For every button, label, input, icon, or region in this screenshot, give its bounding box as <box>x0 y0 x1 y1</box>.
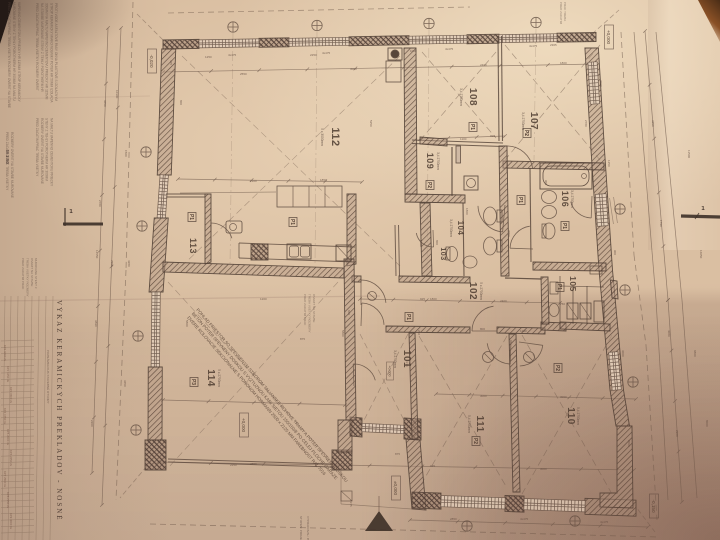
svg-text:14550: 14550 <box>95 250 99 259</box>
svg-text:900: 900 <box>544 180 548 185</box>
svg-text:PRED ZACATIM: PRED ZACATIM <box>559 2 563 25</box>
svg-text:KP4 1750 1x: KP4 1750 1x <box>3 408 7 425</box>
svg-text:2780: 2780 <box>98 200 102 207</box>
svg-text:3000: 3000 <box>560 395 567 399</box>
svg-text:1800: 1800 <box>430 297 437 301</box>
svg-text:2050: 2050 <box>507 230 511 237</box>
svg-text:4x475: 4x475 <box>520 517 529 521</box>
svg-text:11500: 11500 <box>687 150 691 158</box>
svg-text:105: 105 <box>568 276 578 292</box>
svg-text:5 x 3000mm: 5 x 3000mm <box>320 128 324 146</box>
svg-text:250: 250 <box>417 330 421 335</box>
svg-text:TREBA VSETKY ROZMERY: TREBA VSETKY ROZMERY <box>25 258 29 296</box>
svg-text:106: 106 <box>560 191 570 208</box>
svg-text:900: 900 <box>613 250 617 255</box>
svg-text:2550: 2550 <box>240 72 247 76</box>
svg-text:1100: 1100 <box>460 137 467 141</box>
svg-text:7550: 7550 <box>110 260 114 267</box>
svg-text:2780: 2780 <box>584 120 588 127</box>
svg-text:4x475: 4x475 <box>445 47 454 51</box>
svg-text:4x475: 4x475 <box>529 44 538 48</box>
svg-text:875: 875 <box>300 337 305 341</box>
svg-text:6800: 6800 <box>693 350 697 357</box>
svg-text:1000: 1000 <box>410 49 417 53</box>
svg-text:3,4 2700mm: 3,4 2700mm <box>521 112 525 130</box>
svg-text:P2: P2 <box>472 438 478 444</box>
svg-text:KP7 2500 1x: KP7 2500 1x <box>3 471 7 488</box>
svg-text:3000: 3000 <box>540 467 547 471</box>
svg-text:P1: P1 <box>188 214 194 220</box>
svg-text:P2: P2 <box>523 130 529 136</box>
svg-text:925: 925 <box>420 297 425 301</box>
svg-text:PRAC TREBA: PRAC TREBA <box>563 2 567 21</box>
svg-text:KP5 2000 3x: KP5 2000 3x <box>6 429 10 446</box>
svg-text:POHLAD PRIESTOR SO SPEVNENYM S: POHLAD PRIESTOR SO SPEVNENYM STROPOM TAL… <box>195 307 349 483</box>
svg-text:4x475: 4x475 <box>600 520 609 524</box>
svg-text:2200: 2200 <box>90 420 94 427</box>
svg-text:5800: 5800 <box>341 330 345 337</box>
svg-text:2850: 2850 <box>250 462 257 466</box>
svg-text:1: 1 <box>69 209 73 215</box>
svg-text:1375: 1375 <box>349 500 353 507</box>
svg-text:4280: 4280 <box>127 260 131 267</box>
svg-text:113: 113 <box>188 238 198 254</box>
svg-text:M 1:50: M 1:50 <box>5 150 10 165</box>
svg-text:114: 114 <box>205 369 216 387</box>
svg-text:112: 112 <box>329 127 341 146</box>
svg-text:1200: 1200 <box>520 329 527 333</box>
svg-text:3,4 2700mm: 3,4 2700mm <box>449 219 453 237</box>
svg-text:5800: 5800 <box>185 320 189 327</box>
svg-text:3650: 3650 <box>123 380 127 387</box>
svg-text:3250: 3250 <box>651 120 655 127</box>
svg-text:300MM NA MALTU VAPENNO CEMENTO: 300MM NA MALTU VAPENNO CEMENTOVU PRIECKY… <box>45 3 49 100</box>
svg-text:111: 111 <box>474 415 485 432</box>
svg-text:103: 103 <box>439 247 446 260</box>
svg-text:5,4 2700mm: 5,4 2700mm <box>467 415 471 433</box>
svg-text:KP6 2250 2x: KP6 2250 2x <box>9 450 13 467</box>
svg-text:800: 800 <box>435 240 439 245</box>
svg-text:1500: 1500 <box>124 150 128 157</box>
svg-text:-0,020: -0,020 <box>149 54 154 67</box>
svg-text:5250: 5250 <box>369 120 373 127</box>
svg-text:2400: 2400 <box>480 63 487 67</box>
svg-text:STROP KERAMICKY MIAKO NOSNIKY: STROP KERAMICKY MIAKO NOSNIKY POTER HR 5… <box>49 3 53 103</box>
svg-text:PRED ZACATIM PRAC TREBA VSETKY: PRED ZACATIM PRAC TREBA VSETKY <box>35 118 39 177</box>
svg-text:P1: P1 <box>289 219 295 225</box>
svg-text:425: 425 <box>169 60 173 65</box>
svg-text:P1: P1 <box>556 284 562 290</box>
svg-text:P2: P2 <box>554 365 560 371</box>
svg-text:2400: 2400 <box>500 299 507 303</box>
svg-text:5 x 2700mm: 5 x 2700mm <box>479 282 483 300</box>
svg-text:ROZMERY OVERIT NA STAVBE MUROV: ROZMERY OVERIT NA STAVBE MUROVANE <box>10 132 14 198</box>
svg-text:P1: P1 <box>517 197 523 203</box>
svg-text:2850: 2850 <box>450 517 457 521</box>
svg-text:PROTI VODE ASFALTOVE PASY OKNA: PROTI VODE ASFALTOVE PASY OKNA PLASTOVE … <box>54 3 58 101</box>
svg-text:1500: 1500 <box>419 240 423 247</box>
svg-text:1200: 1200 <box>260 297 267 301</box>
svg-text:P2: P2 <box>426 182 432 188</box>
svg-text:PRED ZACATIM PRAC: PRED ZACATIM PRAC <box>303 294 307 326</box>
svg-text:1850: 1850 <box>320 178 327 182</box>
svg-text:VYPRACOVAL: ING. ARCH: VYPRACOVAL: ING. ARCH <box>306 516 310 540</box>
svg-text:3000: 3000 <box>621 350 625 357</box>
svg-text:P3: P3 <box>190 379 196 385</box>
svg-text:+0,000: +0,000 <box>388 365 392 376</box>
svg-text:3,4 2700mm: 3,4 2700mm <box>436 152 440 170</box>
svg-text:VAPENNO CEMENTOVU PRIECKY HR 1: VAPENNO CEMENTOVU PRIECKY HR 115MM STROP… <box>17 2 21 103</box>
svg-text:P1: P1 <box>405 314 411 320</box>
svg-text:925: 925 <box>430 464 435 468</box>
svg-text:1250: 1250 <box>205 55 212 59</box>
svg-text:1250: 1250 <box>607 160 611 167</box>
svg-text:TREBA VSETKY ROZMERY: TREBA VSETKY ROZMERY <box>307 294 311 332</box>
svg-text:P1: P1 <box>561 223 567 229</box>
svg-text:5,4 2700mm: 5,4 2700mm <box>576 407 580 425</box>
svg-text:925: 925 <box>359 420 363 425</box>
svg-text:990: 990 <box>490 134 495 138</box>
svg-text:KP2 1250 4x: KP2 1250 4x <box>6 366 10 383</box>
svg-text:10300: 10300 <box>115 90 119 99</box>
svg-text:VÝKAZ KERAMICKÝCH PREKLADOV -: VÝKAZ KERAMICKÝCH PREKLADOV - NOSNÉ <box>55 300 63 522</box>
svg-text:±0,000: ±0,000 <box>393 481 398 495</box>
svg-text:1800: 1800 <box>465 208 469 215</box>
svg-text:OVERIT NA STAVBE: OVERIT NA STAVBE <box>30 258 34 286</box>
svg-text:5 x 2700mm: 5 x 2700mm <box>217 369 221 387</box>
svg-text:2365: 2365 <box>550 43 557 47</box>
svg-text:BETON POTER SPEVNENY DOSKOU S: BETON POTER SPEVNENY DOSKOU S VYZTUZNOU … <box>191 311 339 480</box>
svg-text:MUROVANE STENY Z: MUROVANE STENY Z <box>34 258 38 289</box>
svg-text:110: 110 <box>565 407 576 425</box>
svg-text:NA MALTU VAPENNO CEMENTOVU PRI: NA MALTU VAPENNO CEMENTOVU PRIECKY <box>49 118 53 187</box>
svg-text:102: 102 <box>467 282 478 300</box>
svg-text:1790: 1790 <box>659 220 663 227</box>
svg-text:109: 109 <box>425 153 435 170</box>
svg-text:8000: 8000 <box>705 420 709 427</box>
svg-text:750: 750 <box>560 302 565 306</box>
svg-text:KP9 3000 1x: KP9 3000 1x <box>9 513 13 530</box>
svg-text:800: 800 <box>480 327 485 331</box>
svg-text:3050: 3050 <box>103 100 107 107</box>
svg-text:3890: 3890 <box>94 320 98 327</box>
svg-text:108: 108 <box>467 88 478 106</box>
svg-text:ROZMERY OVERIT NA STAVBE MUROV: ROZMERY OVERIT NA STAVBE MUROVANE <box>40 118 44 184</box>
svg-text:STENY Z TEHLY POROTHERM HR 300: STENY Z TEHLY POROTHERM HR 300MM <box>45 118 49 181</box>
svg-text:DVERE ROLOVACIE SEKCIONALNE S: DVERE ROLOVACIE SEKCIONALNE S POHONOM HO… <box>186 315 327 476</box>
svg-text:2300: 2300 <box>250 179 257 183</box>
svg-text:PRED ZACATIM PRAC TREBA VSETKY: PRED ZACATIM PRAC TREBA VSETKY ROZMERY O… <box>7 2 11 108</box>
svg-text:-0,150: -0,150 <box>651 499 656 512</box>
svg-text:2250: 2250 <box>310 53 317 57</box>
svg-text:2980: 2980 <box>675 430 679 437</box>
svg-text:KP1 1000 2x: KP1 1000 2x <box>3 345 7 362</box>
svg-text:3,4 2700mm: 3,4 2700mm <box>570 190 574 208</box>
svg-text:+0,000: +0,000 <box>606 30 611 45</box>
svg-text:4x475: 4x475 <box>228 53 237 57</box>
svg-text:P1: P1 <box>469 124 475 130</box>
svg-text:MUROVANE STENY Z TEHLY POROTHE: MUROVANE STENY Z TEHLY POROTHERM HR 300M… <box>12 2 16 102</box>
svg-text:OVERIT NA STAVBE: OVERIT NA STAVBE <box>312 294 316 322</box>
svg-text:3,4 2700mm: 3,4 2700mm <box>459 88 463 106</box>
svg-text:+0,000: +0,000 <box>241 418 246 433</box>
svg-text:1800: 1800 <box>560 61 567 65</box>
svg-text:2000: 2000 <box>627 440 631 447</box>
svg-text:3000: 3000 <box>599 80 603 87</box>
svg-text:104: 104 <box>456 221 465 236</box>
svg-text:1375: 1375 <box>405 360 409 367</box>
svg-text:PRED ZACATIM PRAC TREBA VSETKY: PRED ZACATIM PRAC TREBA VSETKY ROZMERY O… <box>35 3 39 91</box>
svg-text:107: 107 <box>528 112 539 130</box>
svg-text:4080: 4080 <box>667 330 671 337</box>
svg-text:860: 860 <box>347 310 351 315</box>
svg-text:2250: 2250 <box>230 463 237 467</box>
svg-text:16050: 16050 <box>699 250 703 259</box>
svg-text:STUPEN: PROJEKT PRE STAVEBNE P: STUPEN: PROJEKT PRE STAVEBNE POVOLENIE <box>299 516 303 540</box>
svg-text:1: 1 <box>701 206 705 212</box>
svg-text:POZNÁMKA KUS STAVEBNÉ OTVORY: POZNÁMKA KUS STAVEBNÉ OTVORY <box>46 350 51 404</box>
svg-text:875: 875 <box>395 452 400 456</box>
svg-text:3000: 3000 <box>350 67 357 71</box>
svg-text:KP3 1500 2x: KP3 1500 2x <box>9 387 13 404</box>
svg-text:KP8 2750 2x: KP8 2750 2x <box>6 492 10 509</box>
svg-text:3000: 3000 <box>480 394 487 398</box>
svg-text:4x475: 4x475 <box>322 51 331 55</box>
svg-text:875: 875 <box>330 465 335 469</box>
svg-text:PRED ZACATIM PRAC: PRED ZACATIM PRAC <box>21 258 25 290</box>
svg-text:NA STAVBE MUROVANE STENY Z TEH: NA STAVBE MUROVANE STENY Z TEHLY POROTHE… <box>40 3 44 93</box>
svg-text:800: 800 <box>179 100 183 105</box>
